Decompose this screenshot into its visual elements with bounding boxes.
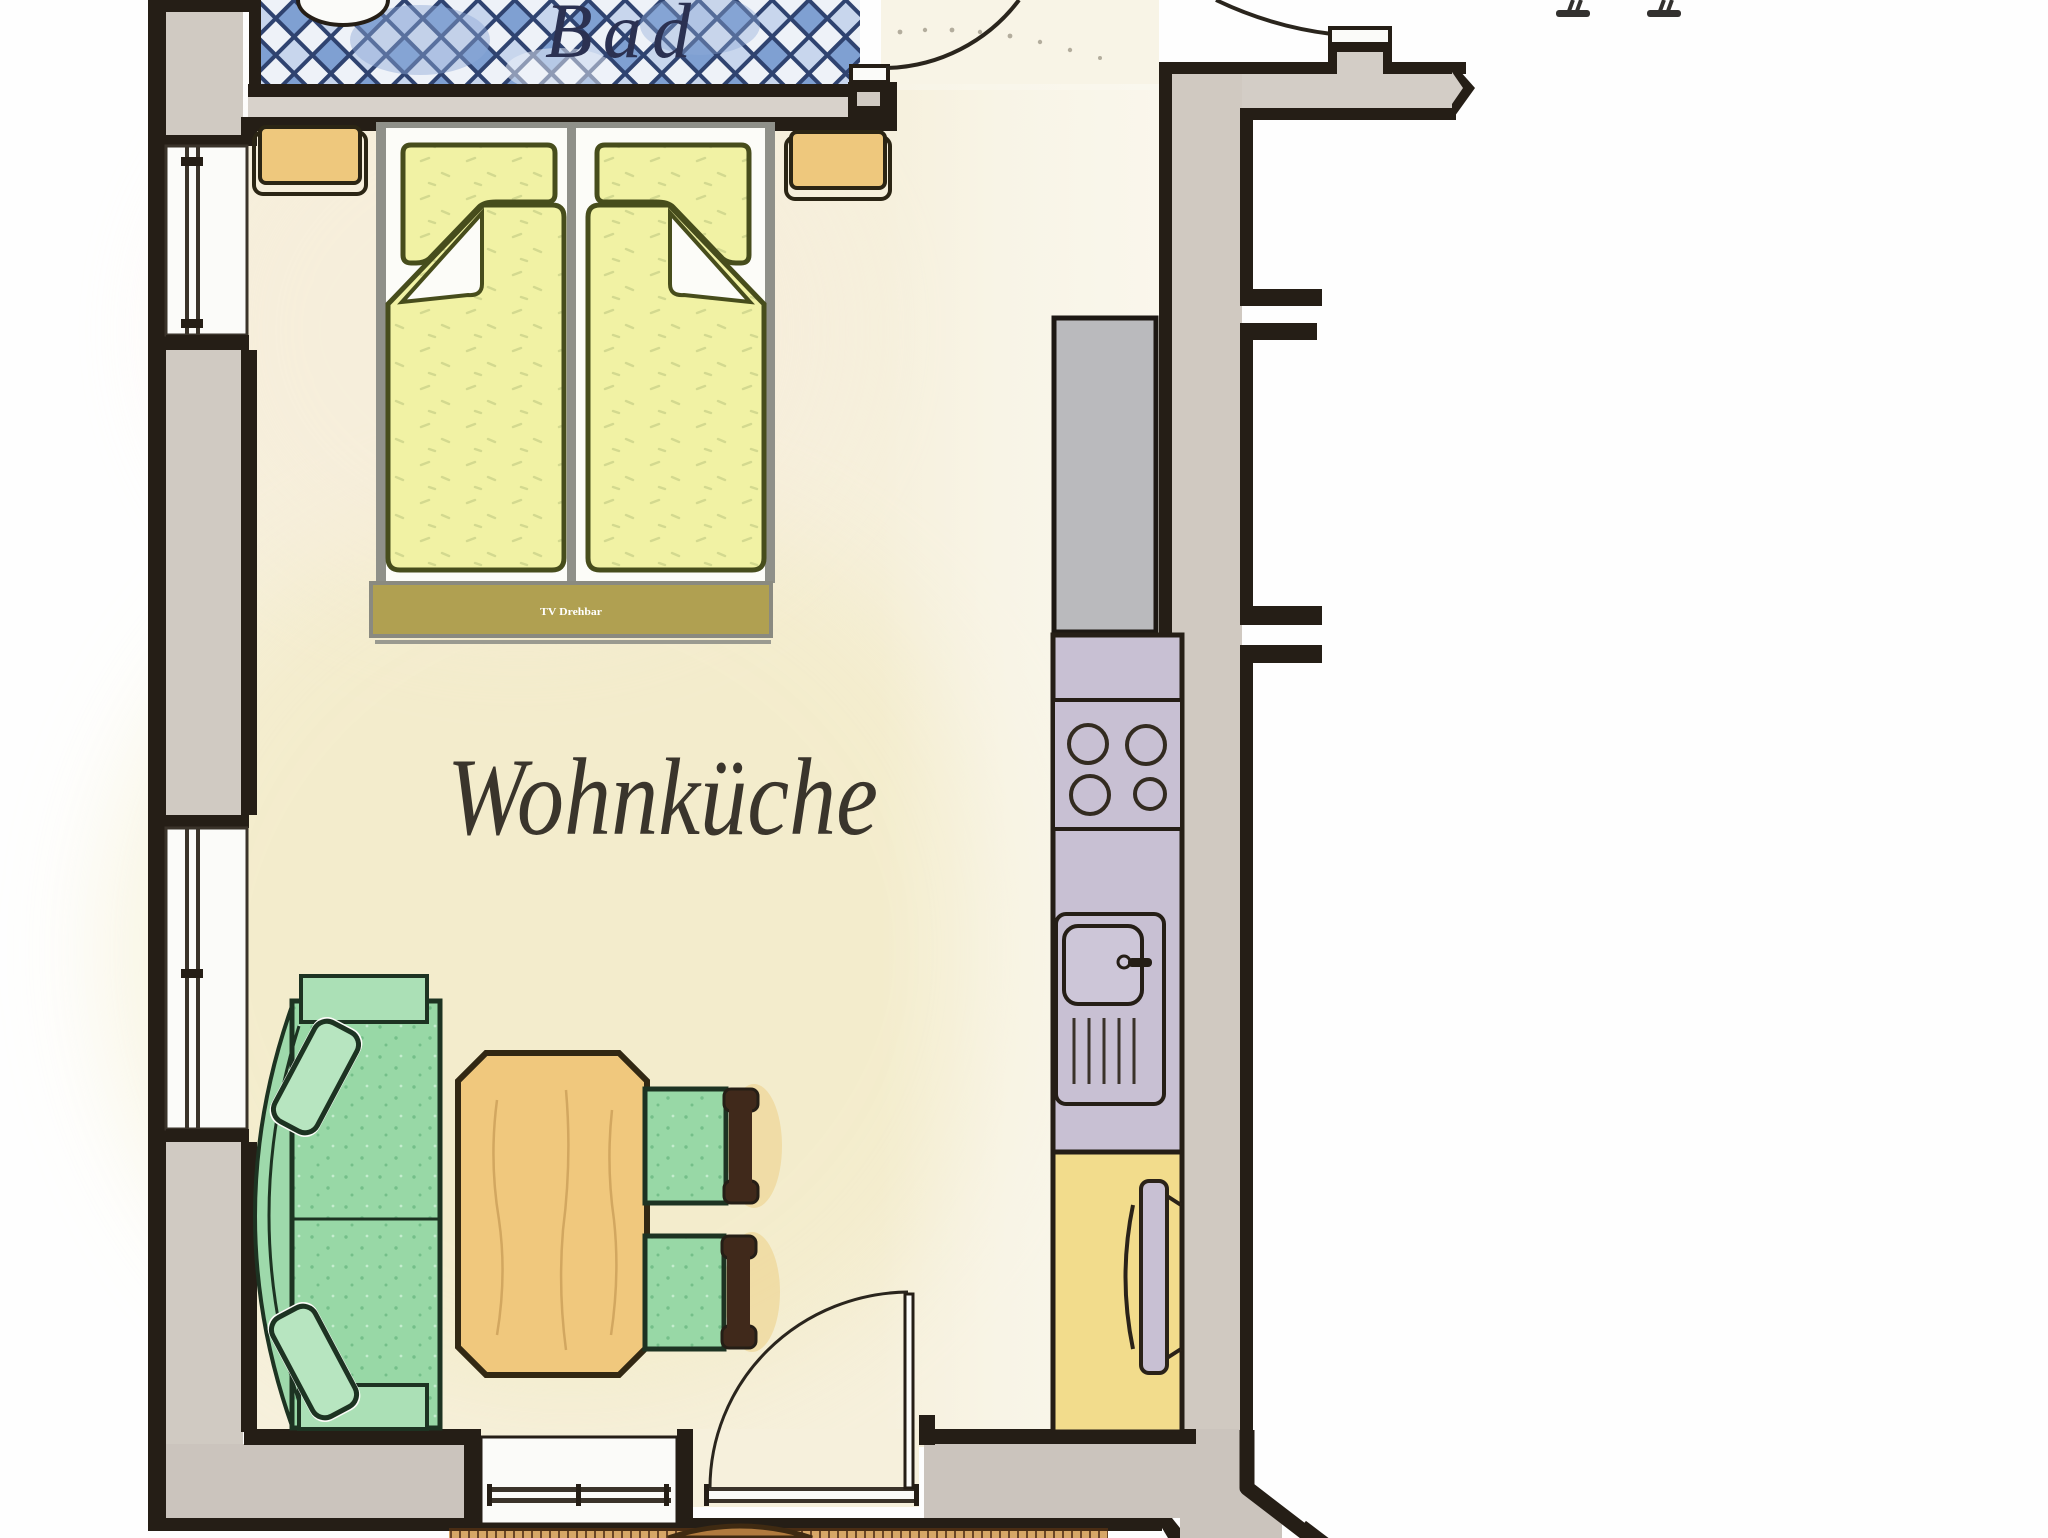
svg-text:Bad: Bad (545, 0, 692, 74)
svg-text:Wohnküche: Wohnküche (447, 736, 878, 858)
svg-text:TV Drehbar: TV Drehbar (540, 606, 602, 618)
